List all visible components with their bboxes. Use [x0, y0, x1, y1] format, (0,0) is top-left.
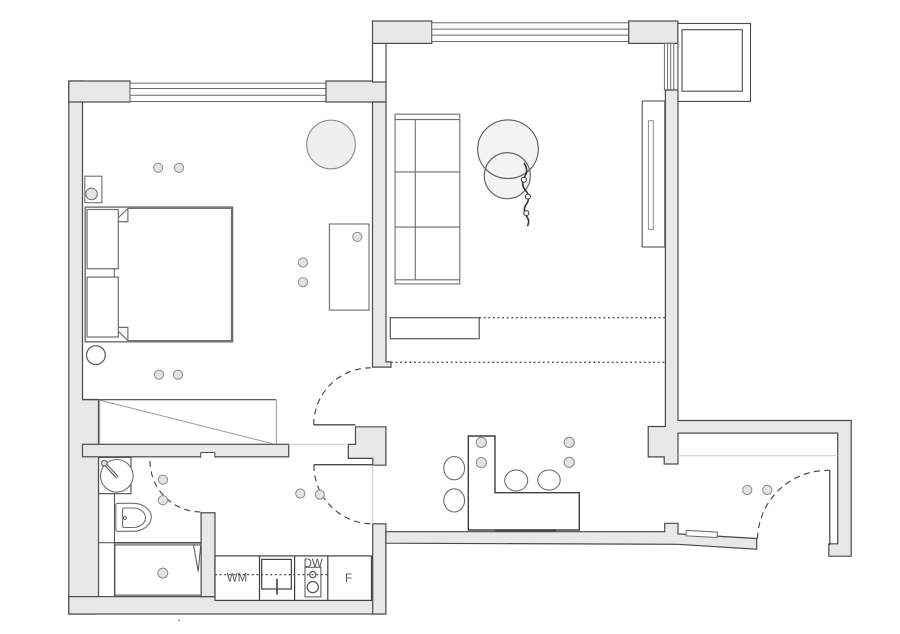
svg-text:F: F: [345, 573, 352, 585]
svg-text:DW: DW: [304, 558, 323, 570]
